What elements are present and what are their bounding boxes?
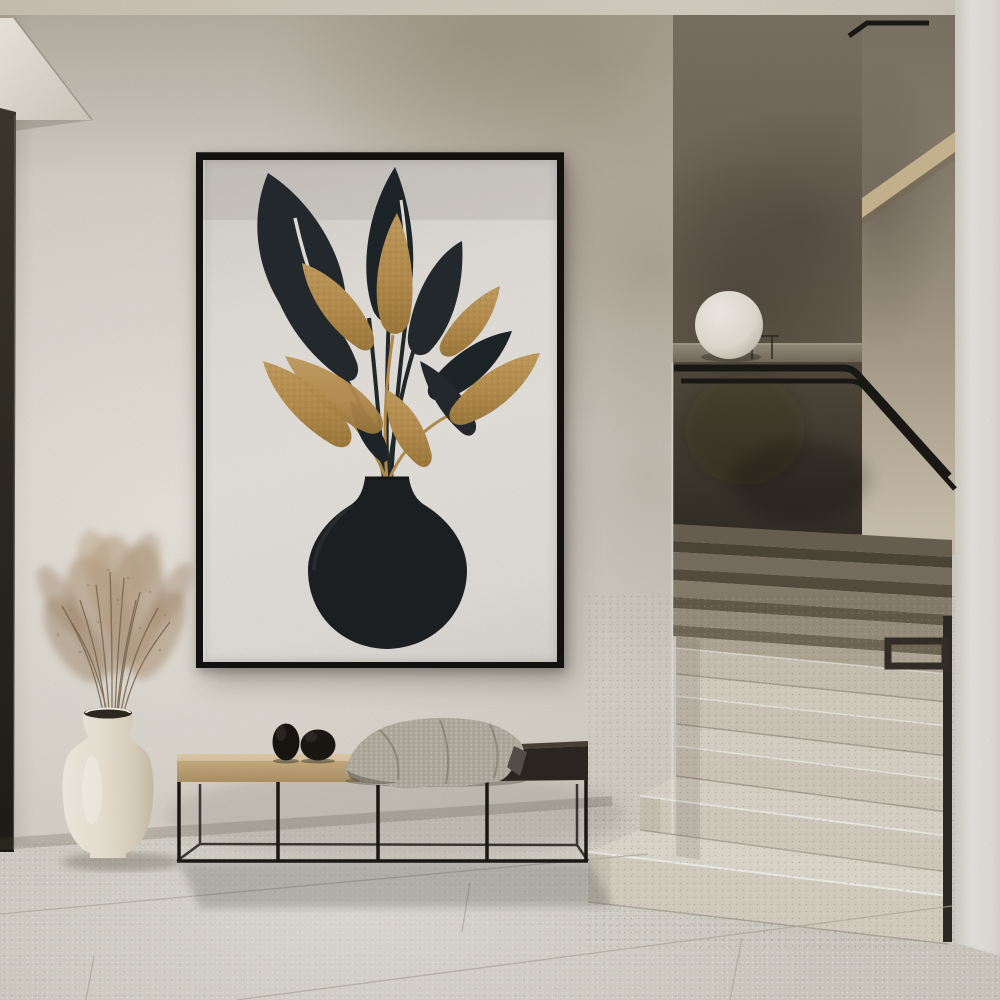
door-reveal xyxy=(0,108,16,852)
pampas-plumes xyxy=(29,527,201,692)
staircase xyxy=(585,23,955,948)
landing-ledge xyxy=(673,343,862,362)
white-floor-vase xyxy=(62,708,153,859)
sphere-lamp xyxy=(695,291,763,359)
framed-art-print xyxy=(196,152,564,668)
art-canvas xyxy=(203,160,557,662)
upper-floor-handrail xyxy=(849,23,929,36)
art-vase xyxy=(308,478,467,649)
bench xyxy=(165,718,625,908)
stair-soffit-band xyxy=(862,132,955,218)
botanical-artwork xyxy=(203,160,557,662)
knit-throw xyxy=(345,718,527,789)
interior-photo xyxy=(0,0,1000,1000)
